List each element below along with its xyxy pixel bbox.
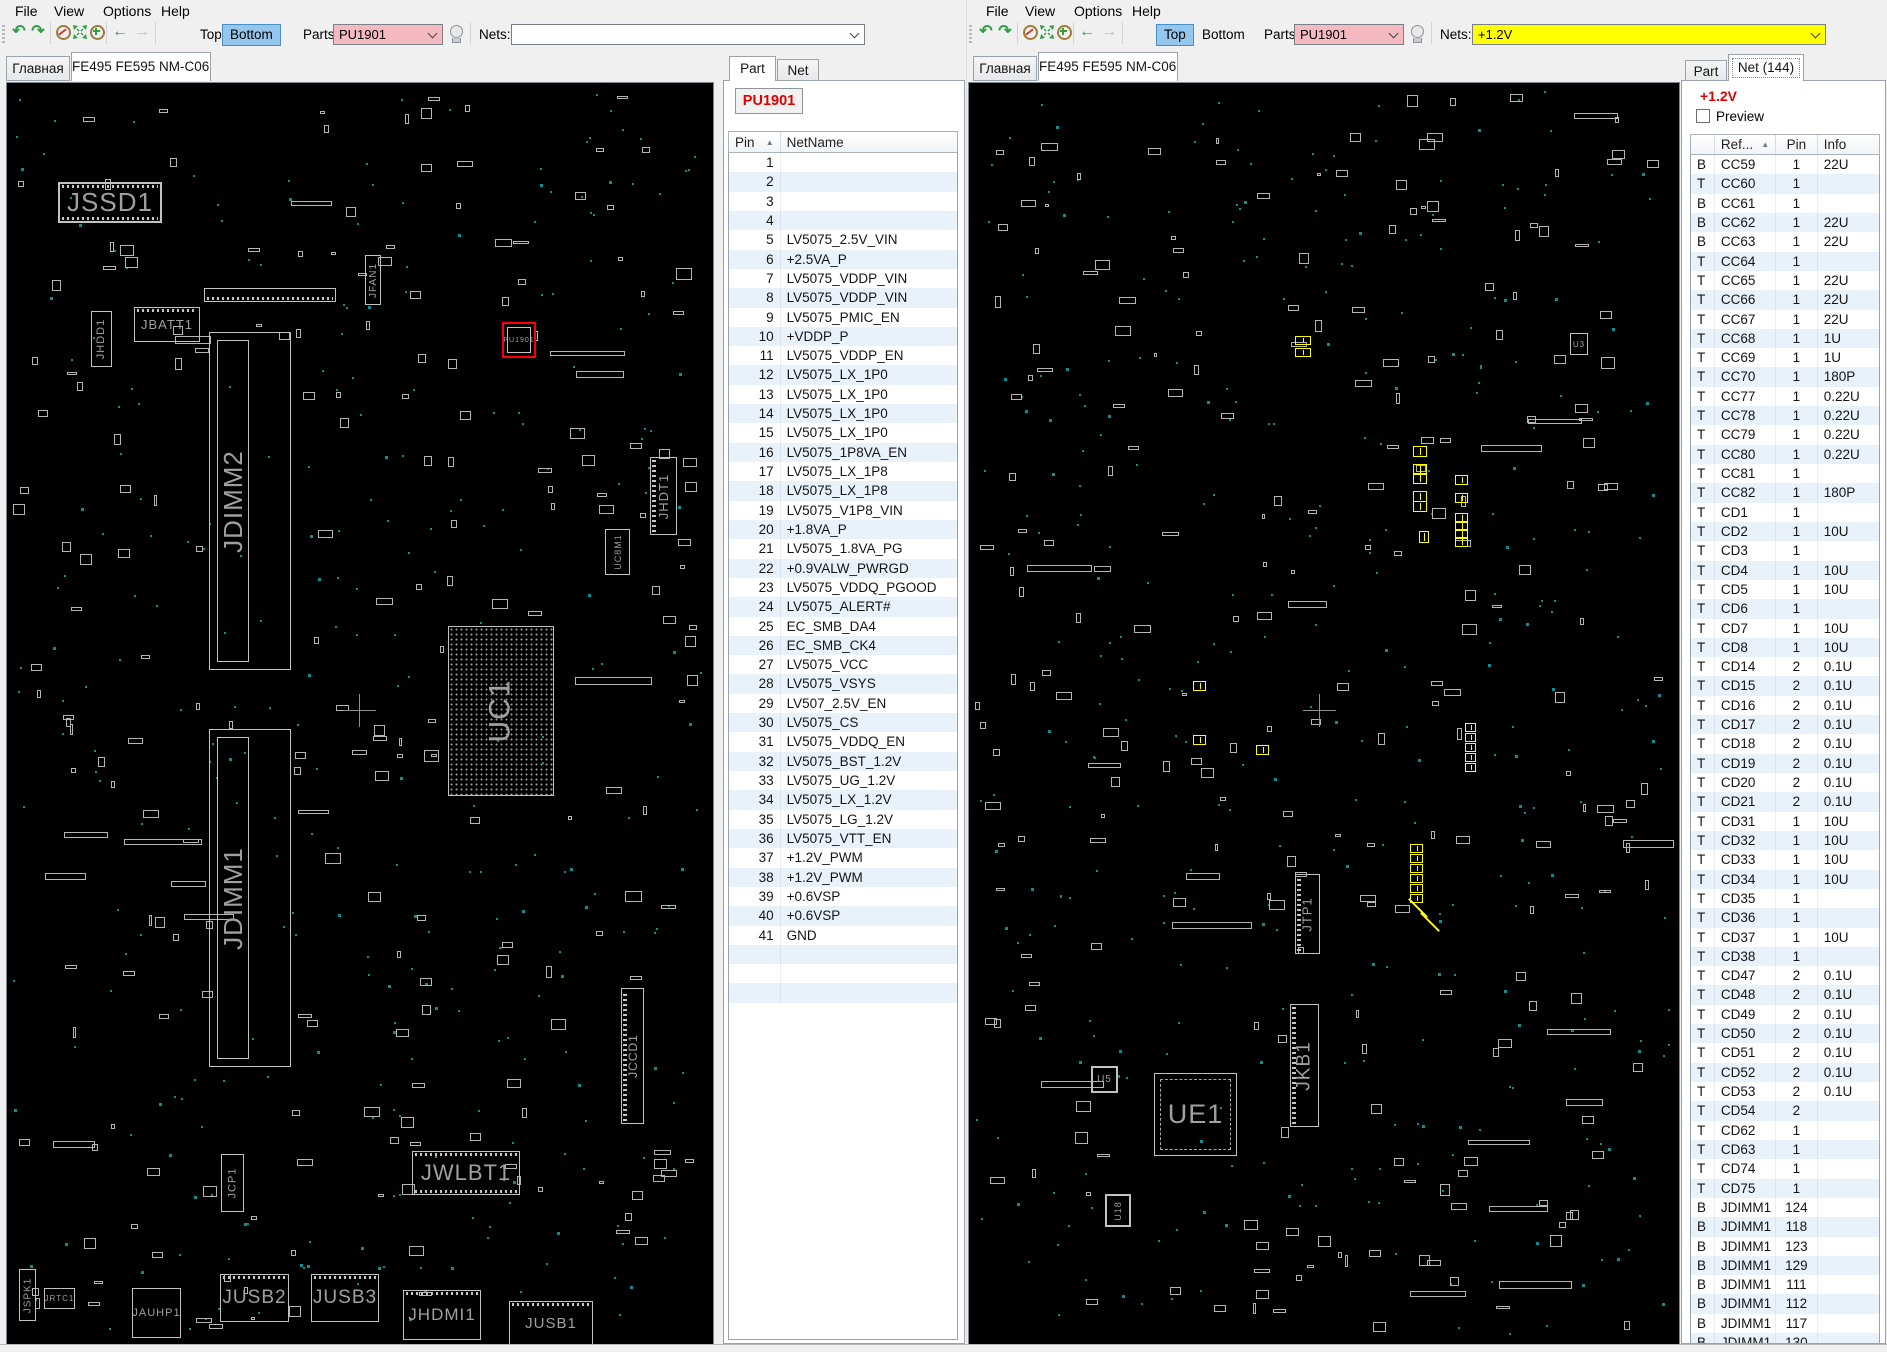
net-pin-row[interactable]: TCD2110U — [1691, 522, 1879, 541]
via-dot — [1176, 362, 1178, 364]
net-pin-row[interactable]: TCD631 — [1691, 1140, 1879, 1159]
empty-row[interactable] — [729, 945, 957, 964]
part-pin-row[interactable]: 20+1.8VA_P — [729, 520, 957, 539]
board-component-jssd1[interactable]: JSSD1 — [58, 182, 162, 223]
net-pin-row[interactable]: TCD1420.1U — [1691, 657, 1879, 676]
via-dot — [1091, 1207, 1093, 1209]
via-dot — [180, 1009, 182, 1011]
net-pin-row[interactable]: TCD31110U — [1691, 812, 1879, 831]
toolbar-drag-handle[interactable] — [969, 23, 972, 43]
board-component-ue1[interactable]: UE1 — [1154, 1073, 1237, 1156]
net-pin-row[interactable]: BJDIMM1129 — [1691, 1256, 1879, 1275]
part-table-header[interactable]: Pin▲ NetName — [728, 131, 958, 153]
part-pin-row[interactable]: 21LV5075_1.8VA_PG — [729, 539, 957, 558]
menu-file[interactable]: File — [11, 1, 42, 21]
part-pin-row[interactable]: 9LV5075_PMIC_EN — [729, 308, 957, 327]
rotate-left-icon[interactable]: ↶ — [977, 22, 995, 42]
part-pin-row[interactable]: 14LV5075_LX_1P0 — [729, 404, 957, 423]
net-pin-row[interactable]: TCD7110U — [1691, 619, 1879, 638]
ref-designator: CC82 — [1715, 483, 1776, 502]
net-name: LV5075_CS — [781, 713, 957, 732]
smd-part — [1513, 292, 1516, 300]
via-dot — [1264, 636, 1266, 638]
net-pin-row[interactable]: TCD61 — [1691, 599, 1879, 618]
net-pin-row[interactable]: TCC601 — [1691, 174, 1879, 193]
smd-part — [551, 503, 554, 510]
board-component-jauhp1[interactable]: JAUHP1 — [132, 1288, 181, 1338]
smd-part — [428, 97, 440, 102]
net-pin-row[interactable]: TCD34110U — [1691, 870, 1879, 889]
zoom-out-icon[interactable] — [1021, 22, 1039, 42]
part-pin-row[interactable]: 6+2.5VA_P — [729, 250, 957, 269]
part-info: 10U — [1818, 850, 1879, 869]
part-pin-row[interactable]: 5LV5075_2.5V_VIN — [729, 230, 957, 249]
tab-net[interactable]: Net — [777, 59, 819, 81]
via-dot — [405, 291, 407, 293]
via-dot — [1621, 709, 1623, 711]
net-pin-row[interactable]: TCC701180P — [1691, 367, 1879, 386]
smd-part — [1076, 1101, 1090, 1113]
top-side-button[interactable]: Top — [1156, 24, 1194, 46]
toolbar-drag-handle[interactable] — [2, 23, 5, 43]
layer-side: T — [1691, 445, 1715, 464]
menu-view[interactable]: View — [1021, 1, 1059, 21]
via-dot — [1069, 897, 1071, 899]
net-pin-row[interactable]: TCD5020.1U — [1691, 1024, 1879, 1043]
smd-part — [456, 203, 461, 209]
smd-part — [1291, 570, 1295, 575]
via-dot — [559, 951, 561, 953]
nets-combobox[interactable] — [511, 24, 865, 45]
pin-number: 29 — [729, 694, 781, 713]
board-component-jkb1[interactable]: JKB1 — [1290, 1004, 1319, 1127]
smd-part — [1076, 613, 1080, 623]
pcb-canvas-top[interactable]: U3JTP1JKB1U5UE1U18 — [968, 82, 1680, 1346]
rotate-right-icon[interactable]: ↷ — [29, 22, 47, 42]
ref-designator: JDIMM1 — [1715, 1237, 1776, 1256]
board-component-jccd1[interactable]: JCCD1 — [621, 988, 644, 1124]
preview-checkbox[interactable] — [1696, 109, 1710, 123]
via-dot — [601, 663, 603, 665]
net-pins-table[interactable]: BCC59122UTCC601BCC611BCC62122UBCC63122UT… — [1690, 155, 1880, 1344]
part-pin-row[interactable]: 26EC_SMB_CK4 — [729, 636, 957, 655]
via-dot — [1435, 359, 1437, 361]
board-component-jrtc1[interactable]: JRTC1 — [44, 1288, 75, 1309]
part-pin-row[interactable]: 3 — [729, 192, 957, 211]
pin-number: 1 — [1776, 638, 1818, 657]
pin-number: 22 — [729, 559, 781, 578]
smd-part — [1288, 305, 1300, 311]
via-dot — [1536, 1242, 1539, 1245]
board-component-jusb3[interactable]: JUSB3 — [311, 1274, 379, 1322]
part-pin-row[interactable]: 34LV5075_LX_1.2V — [729, 790, 957, 809]
board-component-jdimm2[interactable]: JDIMM2 — [209, 332, 291, 670]
net-pin-row[interactable]: TCC7710.22U — [1691, 387, 1879, 406]
board-component-job1[interactable] — [204, 288, 336, 302]
pin-number: 1 — [1776, 445, 1818, 464]
via-dot — [1640, 1040, 1642, 1042]
smd-part — [1194, 365, 1199, 374]
net-pin-row[interactable]: TCD381 — [1691, 947, 1879, 966]
net-pin-row[interactable]: BJDIMM1118 — [1691, 1217, 1879, 1236]
net-name: LV5075_LX_1P0 — [781, 423, 957, 442]
empty-row[interactable] — [729, 983, 957, 1002]
board-component-jcp1[interactable]: JCP1 — [221, 1154, 244, 1212]
via-dot — [203, 548, 205, 550]
bottom-side-button[interactable]: Bottom — [222, 24, 281, 46]
via-dot — [654, 932, 656, 934]
pin-number: 32 — [729, 752, 781, 771]
net-pin-row[interactable]: TCD2020.1U — [1691, 773, 1879, 792]
net-pin-row[interactable]: TCC8010.22U — [1691, 445, 1879, 464]
net-pin-row[interactable]: BJDIMM1124 — [1691, 1198, 1879, 1217]
via-dot — [1138, 679, 1140, 681]
smd-part — [424, 750, 439, 762]
net-pin-row[interactable]: BCC62122U — [1691, 213, 1879, 232]
via-dot — [557, 1232, 560, 1235]
part-pin-row[interactable]: 32LV5075_BST_1.2V — [729, 752, 957, 771]
part-pin-row[interactable]: 23LV5075_VDDQ_PGOOD — [729, 578, 957, 597]
via-dot — [308, 674, 311, 677]
board-component-jbatt1[interactable]: JBATT1 — [134, 307, 200, 342]
menu-file[interactable]: File — [982, 1, 1013, 21]
pin-number: 2 — [1776, 696, 1818, 715]
net-pin-row[interactable]: TCD1720.1U — [1691, 715, 1879, 734]
net-pin-row[interactable]: TCC7910.22U — [1691, 425, 1879, 444]
part-pin-row[interactable]: 27LV5075_VCC — [729, 655, 957, 674]
net-pin-row[interactable]: BJDIMM1123 — [1691, 1237, 1879, 1256]
smd-part — [1010, 567, 1014, 576]
net-pin-row[interactable]: BJDIMM1130 — [1691, 1333, 1879, 1344]
net-pin-row[interactable]: TCC811 — [1691, 464, 1879, 483]
empty-row[interactable] — [729, 964, 957, 983]
board-component-u18[interactable]: U18 — [1105, 1194, 1131, 1227]
board-component-jspk1[interactable]: JSPK1 — [19, 1269, 36, 1321]
net-pin-row[interactable]: TCD1520.1U — [1691, 676, 1879, 695]
net-pin-row[interactable]: TCC67122U — [1691, 310, 1879, 329]
net-pin-row[interactable]: TCC65122U — [1691, 271, 1879, 290]
smd-part — [1163, 761, 1170, 772]
part-pin-row[interactable]: 10+VDDP_P — [729, 327, 957, 346]
part-pin-row[interactable]: 22+0.9VALW_PWRGD — [729, 559, 957, 578]
board-component-u3[interactable]: U3 — [1570, 333, 1588, 355]
smd-part — [617, 96, 628, 99]
smd-part — [538, 468, 552, 473]
net-pin-row[interactable]: TCD621 — [1691, 1121, 1879, 1140]
smd-part — [642, 147, 650, 153]
net-pin-row[interactable]: TCD5110U — [1691, 580, 1879, 599]
back-icon[interactable]: ← — [1078, 22, 1096, 42]
ref-designator: CD4 — [1715, 561, 1776, 580]
via-dot — [43, 153, 45, 155]
smd-part — [1111, 777, 1120, 788]
net-pin-row[interactable]: BCC611 — [1691, 194, 1879, 213]
smd-part — [402, 394, 409, 399]
layer-side: T — [1691, 928, 1715, 947]
board-component-pu1901[interactable]: PU1901 — [502, 322, 536, 358]
tab-board-file[interactable]: FE495 FE595 NM-C061 — [1038, 52, 1178, 81]
tab-home[interactable]: Главная — [6, 56, 70, 81]
board-component-uc8m1[interactable]: UC8M1 — [605, 529, 630, 575]
via-dot — [473, 805, 475, 807]
part-pin-row[interactable]: 19LV5075_V1P8_VIN — [729, 501, 957, 520]
left-board-window: File View Options Help ↶ ↷ ← → Top Botto… — [0, 0, 966, 1352]
smd-part — [1148, 148, 1161, 155]
board-component-jusb1[interactable]: JUSB1 — [509, 1301, 593, 1345]
pin-number: 1 — [1776, 387, 1818, 406]
net-pin-row[interactable]: BJDIMM1111 — [1691, 1275, 1879, 1294]
net-name: GND — [781, 926, 957, 945]
net-pin-row[interactable]: TCC821180P — [1691, 483, 1879, 502]
board-component-u5[interactable]: U5 — [1091, 1066, 1118, 1093]
net-name: LV5075_VSYS — [781, 674, 957, 693]
net-pin-row[interactable]: TCD1620.1U — [1691, 696, 1879, 715]
smd-part — [975, 702, 980, 710]
bottom-side-button[interactable]: Bottom — [1195, 25, 1252, 45]
net-pin-row[interactable]: TCC6811U — [1691, 329, 1879, 348]
tab-board-file[interactable]: FE495 FE595 NM-C061 — [71, 52, 211, 81]
part-info — [1818, 1294, 1879, 1313]
smd-part — [1256, 1242, 1268, 1249]
board-component-jfan1[interactable]: JFAN1 — [365, 255, 381, 305]
zoom-out-icon[interactable] — [54, 22, 72, 42]
smd-part — [1011, 674, 1016, 685]
back-icon[interactable]: ← — [111, 22, 129, 42]
ref-designator: CD52 — [1715, 1063, 1776, 1082]
net-pin-row[interactable]: TCD31 — [1691, 541, 1879, 560]
pin-number: 1 — [1776, 348, 1818, 367]
board-component-jdimm1[interactable]: JDIMM1 — [209, 729, 291, 1067]
net-table-header[interactable]: Ref...▲ Pin Info — [1690, 134, 1880, 155]
net-pin-row[interactable]: TCD4920.1U — [1691, 1005, 1879, 1024]
via-dot — [1344, 1062, 1346, 1064]
part-pin-row[interactable]: 30LV5075_CS — [729, 713, 957, 732]
net-pin-row[interactable]: BJDIMM1112 — [1691, 1294, 1879, 1313]
rotate-left-icon[interactable]: ↶ — [10, 22, 28, 42]
via-dot — [1478, 382, 1480, 384]
smd-part — [575, 192, 586, 200]
net-pin-row[interactable]: TCC641 — [1691, 252, 1879, 271]
part-pin-row[interactable]: 37+1.2V_PWM — [729, 848, 957, 867]
via-dot — [623, 931, 625, 933]
net-pin-row[interactable]: TCD2120.1U — [1691, 792, 1879, 811]
part-info — [1818, 908, 1879, 927]
via-dot — [1305, 266, 1307, 268]
smd-part — [421, 164, 433, 173]
smd-part — [1103, 728, 1118, 737]
via-dot — [640, 138, 642, 140]
part-pin-row[interactable]: 4 — [729, 211, 957, 230]
part-pin-row[interactable]: 25EC_SMB_DA4 — [729, 617, 957, 636]
tab-net[interactable]: Net (144) — [1728, 54, 1804, 81]
part-pin-row[interactable]: 36LV5075_VTT_EN — [729, 829, 957, 848]
smd-part — [248, 248, 260, 253]
board-component-uc1[interactable]: UC1 — [448, 626, 554, 796]
net-pin-row[interactable]: BJDIMM1117 — [1691, 1314, 1879, 1333]
net-pin-row[interactable]: TCD33110U — [1691, 850, 1879, 869]
smd-part — [635, 1237, 647, 1245]
pin-number: 26 — [729, 636, 781, 655]
part-pin-row[interactable]: 41GND — [729, 926, 957, 945]
pin-number: 117 — [1776, 1314, 1818, 1333]
component-label: JWLBT1 — [421, 1160, 511, 1186]
pin-number: 1 — [1776, 271, 1818, 290]
smd-part — [1033, 344, 1039, 354]
board-component-jtp1[interactable]: JTP1 — [1295, 874, 1320, 954]
part-pin-row[interactable]: 24LV5075_ALERT# — [729, 597, 957, 616]
net-pin-row[interactable]: TCD751 — [1691, 1179, 1879, 1198]
tab-part[interactable]: Part — [729, 56, 776, 81]
layer-side: B — [1691, 232, 1715, 251]
via-dot — [1282, 1008, 1284, 1010]
menu-help[interactable]: Help — [157, 1, 194, 21]
via-dot — [570, 868, 573, 871]
parts-combobox[interactable]: PU1901 — [1294, 24, 1404, 45]
right-board-window: File View Options Help ↶ ↷ ← → Top Botto… — [967, 0, 1887, 1352]
part-info: 0.1U — [1818, 734, 1879, 753]
part-pin-row[interactable]: 7LV5075_VDDP_VIN — [729, 269, 957, 288]
zoom-in-icon[interactable] — [1055, 22, 1073, 42]
part-pin-row[interactable]: 1 — [729, 153, 957, 172]
forward-icon[interactable]: → — [1100, 22, 1118, 42]
via-dot — [1354, 1178, 1356, 1180]
smd-part — [1647, 160, 1659, 168]
net-name: LV5075_VDDQ_PGOOD — [781, 578, 957, 597]
rotate-right-icon[interactable]: ↷ — [996, 22, 1014, 42]
fit-view-icon[interactable] — [71, 22, 89, 42]
smd-part — [679, 700, 684, 704]
menu-options[interactable]: Options — [99, 1, 155, 21]
board-component-jwlbt1[interactable]: JWLBT1 — [412, 1151, 520, 1195]
via-dot — [1568, 749, 1570, 751]
net-name — [781, 964, 957, 983]
part-pin-row[interactable]: 18LV5075_LX_1P8 — [729, 481, 957, 500]
via-dot — [1288, 1195, 1291, 1198]
highlight-bulb-icon[interactable] — [1411, 25, 1424, 42]
pin-number: 111 — [1776, 1275, 1818, 1294]
part-pin-row[interactable]: 17LV5075_LX_1P8 — [729, 462, 957, 481]
pin-number: 2 — [1776, 1101, 1818, 1120]
part-pin-row[interactable]: 39+0.6VSP — [729, 887, 957, 906]
net-pin-row[interactable]: BCC59122U — [1691, 155, 1879, 174]
forward-icon[interactable]: → — [133, 22, 151, 42]
part-pin-row[interactable]: 15LV5075_LX_1P0 — [729, 423, 957, 442]
board-component-jusb2[interactable]: JUSB2 — [220, 1274, 289, 1322]
net-pin-row[interactable]: TCD11 — [1691, 503, 1879, 522]
smd-part — [417, 915, 426, 922]
smd-part — [1308, 510, 1317, 514]
via-dot — [1108, 360, 1110, 362]
part-pin-row[interactable]: 13LV5075_LX_1P0 — [729, 385, 957, 404]
via-dot — [1263, 238, 1265, 240]
part-info — [1818, 1275, 1879, 1294]
net-pin-row[interactable]: TCD5320.1U — [1691, 1082, 1879, 1101]
smd-part — [1444, 689, 1461, 696]
via-dot — [1452, 904, 1454, 906]
via-dot — [1608, 1148, 1611, 1151]
fit-view-icon[interactable] — [1038, 22, 1056, 42]
part-pin-row[interactable]: 33LV5075_UG_1.2V — [729, 771, 957, 790]
net-pin-row[interactable]: TCD4720.1U — [1691, 966, 1879, 985]
zoom-in-icon[interactable] — [88, 22, 106, 42]
parts-combobox[interactable]: PU1901 — [333, 24, 443, 45]
chevron-down-icon — [850, 29, 860, 39]
via-dot — [1652, 494, 1655, 497]
net-pin-row[interactable]: TCD5220.1U — [1691, 1063, 1879, 1082]
net-pin-row[interactable]: TCD5120.1U — [1691, 1043, 1879, 1062]
board-component-jhdt1[interactable]: JHDT1 — [650, 457, 677, 535]
pin-number: 24 — [729, 597, 781, 616]
net-pin-row[interactable]: TCD741 — [1691, 1159, 1879, 1178]
highlight-bulb-icon[interactable] — [450, 25, 463, 42]
pcb-canvas-bottom[interactable]: JSSD1JFAN1JHDD1JBATT1JDIMM2JDIMM1PU1901J… — [6, 82, 714, 1346]
part-pin-row[interactable]: 8LV5075_VDDP_VIN — [729, 288, 957, 307]
smd-part — [1091, 943, 1102, 950]
part-pin-row[interactable]: 29LV507_2.5V_EN — [729, 694, 957, 713]
net-pin-row[interactable]: TCD542 — [1691, 1101, 1879, 1120]
part-info: 10U — [1818, 870, 1879, 889]
part-pin-row[interactable]: 40+0.6VSP — [729, 906, 957, 925]
part-pin-row[interactable]: 2 — [729, 172, 957, 191]
layer-side: B — [1691, 213, 1715, 232]
net-name: LV5075_PMIC_EN — [781, 308, 957, 327]
part-pin-row[interactable]: 31LV5075_VDDQ_EN — [729, 732, 957, 751]
part-pin-table[interactable]: 12345LV5075_2.5V_VIN6+2.5VA_P7LV5075_VDD… — [728, 153, 958, 1340]
net-pin-row[interactable]: TCD351 — [1691, 889, 1879, 908]
smd-part — [1094, 566, 1111, 572]
tab-home[interactable]: Главная — [973, 56, 1037, 81]
net-pin-row[interactable]: TCC66122U — [1691, 290, 1879, 309]
part-pin-row[interactable]: 38+1.2V_PWM — [729, 868, 957, 887]
net-pin-row[interactable]: TCD1920.1U — [1691, 754, 1879, 773]
net-pin-row[interactable]: BCC63122U — [1691, 232, 1879, 251]
net-pin-row[interactable]: TCD37110U — [1691, 928, 1879, 947]
part-pin-row[interactable]: 16LV5075_1P8VA_EN — [729, 443, 957, 462]
dimm-slot: JDIMM1 — [217, 737, 249, 1059]
via-dot — [509, 1202, 511, 1204]
net-pin-row[interactable]: TCC7810.22U — [1691, 406, 1879, 425]
part-pin-row[interactable]: 35LV5075_LG_1.2V — [729, 810, 957, 829]
smd-part — [291, 1250, 296, 1256]
net-pin-row[interactable]: TCC6911U — [1691, 348, 1879, 367]
part-pin-row[interactable]: 12LV5075_LX_1P0 — [729, 365, 957, 384]
tab-part[interactable]: Part — [1685, 60, 1727, 82]
net-pin-row[interactable]: TCD32110U — [1691, 831, 1879, 850]
menu-view[interactable]: View — [50, 1, 88, 21]
board-component-jhdmi1[interactable]: JHDMI1 — [403, 1290, 481, 1340]
smd-part — [596, 931, 603, 936]
part-pin-row[interactable]: 11LV5075_VDDP_EN — [729, 346, 957, 365]
smd-part — [492, 599, 507, 609]
via-dot — [1242, 764, 1244, 766]
component-label: JUSB3 — [313, 1287, 377, 1309]
menu-options[interactable]: Options — [1070, 1, 1126, 21]
net-pin-row[interactable]: TCD1820.1U — [1691, 734, 1879, 753]
board-component-jhdd1[interactable]: JHDD1 — [91, 311, 112, 367]
menu-help[interactable]: Help — [1128, 1, 1165, 21]
nets-combobox[interactable]: +1.2V — [1472, 24, 1826, 45]
net-pin-row[interactable]: TCD4820.1U — [1691, 985, 1879, 1004]
part-pin-row[interactable]: 28LV5075_VSYS — [729, 674, 957, 693]
net-pin-row[interactable]: TCD361 — [1691, 908, 1879, 927]
ref-designator: CC79 — [1715, 425, 1776, 444]
via-dot — [1474, 1240, 1476, 1242]
layer-side: T — [1691, 947, 1715, 966]
via-dot — [413, 389, 415, 391]
part-info: 0.1U — [1818, 1024, 1879, 1043]
net-pin-row[interactable]: TCD4110U — [1691, 561, 1879, 580]
net-pin-row[interactable]: TCD8110U — [1691, 638, 1879, 657]
